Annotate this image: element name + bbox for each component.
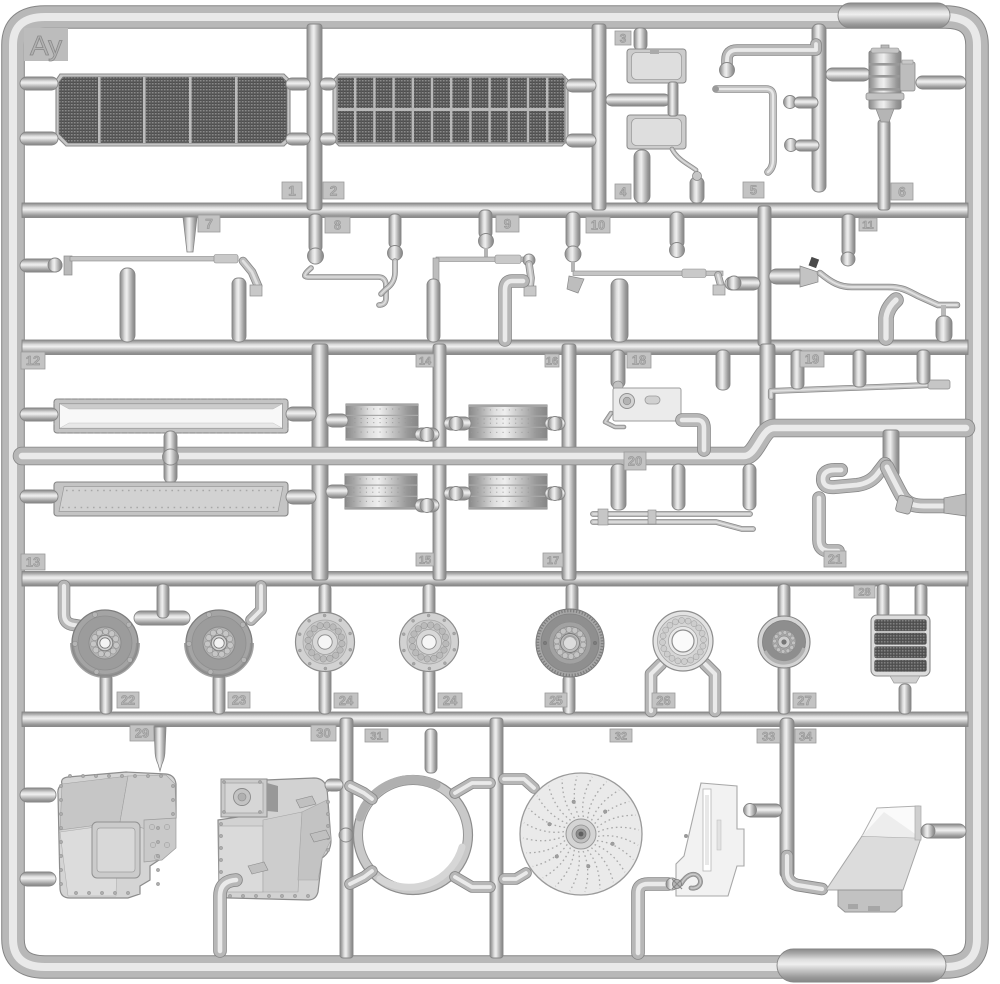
svg-text:17: 17 (547, 555, 559, 567)
svg-text:24: 24 (339, 693, 354, 708)
svg-text:18: 18 (632, 353, 646, 368)
svg-text:27: 27 (797, 693, 811, 708)
svg-text:26: 26 (656, 693, 670, 708)
svg-text:7: 7 (205, 216, 213, 232)
svg-text:24: 24 (443, 693, 458, 708)
svg-text:6: 6 (898, 184, 906, 200)
svg-text:21: 21 (828, 552, 842, 567)
svg-text:25: 25 (549, 693, 563, 707)
svg-text:31: 31 (370, 730, 382, 742)
svg-text:2: 2 (330, 183, 338, 199)
svg-text:15: 15 (419, 554, 431, 566)
svg-text:16: 16 (546, 355, 558, 367)
svg-text:4: 4 (620, 185, 627, 199)
svg-text:20: 20 (628, 454, 642, 469)
svg-text:8: 8 (334, 218, 341, 233)
svg-text:12: 12 (26, 353, 40, 368)
svg-text:5: 5 (750, 183, 757, 198)
svg-text:13: 13 (26, 555, 40, 570)
svg-text:19: 19 (805, 352, 819, 367)
svg-text:32: 32 (615, 730, 627, 742)
svg-text:10: 10 (591, 218, 605, 233)
svg-text:11: 11 (862, 219, 874, 231)
svg-text:34: 34 (799, 729, 813, 743)
svg-text:28: 28 (858, 586, 870, 598)
svg-text:1: 1 (288, 183, 296, 199)
svg-text:14: 14 (419, 355, 432, 367)
svg-text:33: 33 (762, 729, 776, 743)
svg-text:Ay: Ay (30, 30, 62, 61)
svg-text:3: 3 (620, 31, 627, 45)
svg-text:30: 30 (316, 726, 330, 741)
svg-text:9: 9 (504, 216, 512, 232)
svg-text:22: 22 (121, 693, 135, 708)
svg-text:29: 29 (135, 726, 149, 741)
svg-text:23: 23 (232, 693, 246, 708)
